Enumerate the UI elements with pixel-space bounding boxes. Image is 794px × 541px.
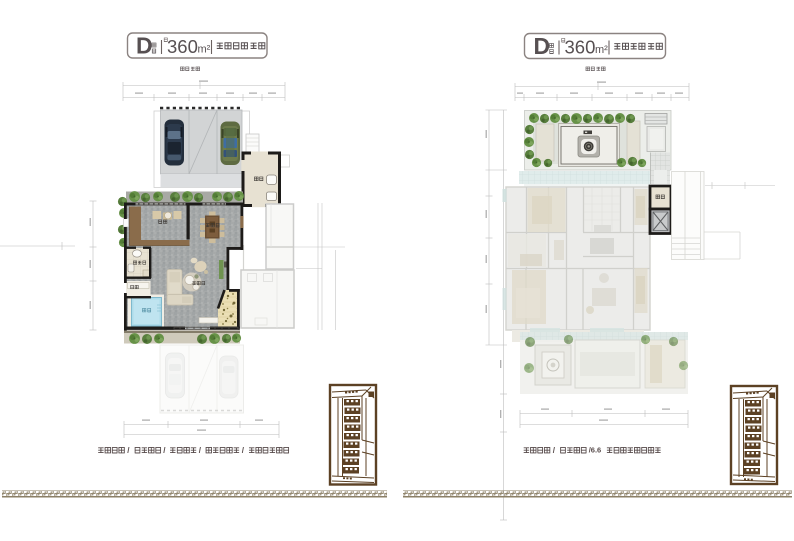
svg-text:360: 360 [167,36,198,57]
svg-text:m²: m² [198,44,211,56]
svg-text:m²: m² [595,44,608,56]
svg-text:D: D [136,33,153,59]
svg-text:360: 360 [565,37,596,58]
svg-text:D: D [534,33,551,59]
svg-text:/6.6: /6.6 [589,446,602,455]
